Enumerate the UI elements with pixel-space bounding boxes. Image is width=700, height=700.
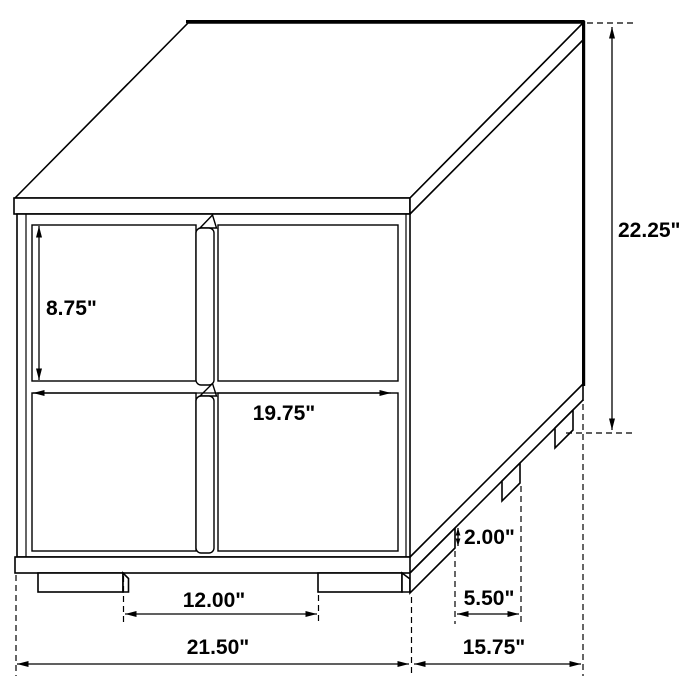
dim-front-leg-spacing: 12.00" <box>124 576 319 624</box>
drawer-front-top-right <box>218 225 398 381</box>
side-corner-leg <box>410 528 455 593</box>
diagram-canvas: 8.75" 22.25" 19.75" 12.00" 21.50" <box>0 0 700 700</box>
drawer-front-bottom-left <box>32 393 196 551</box>
front-left-leg <box>38 573 129 592</box>
cabinet-drawing <box>14 21 585 593</box>
dim-label-leg-height: 2.00" <box>464 526 515 549</box>
dim-label-side-leg-spacing: 5.50" <box>464 587 515 610</box>
front-right-leg <box>318 573 410 592</box>
cabinet-front <box>15 214 410 592</box>
dim-label-overall-depth: 15.75" <box>463 636 526 659</box>
top-front-edge <box>14 198 410 214</box>
dim-label-drawer-width: 19.75" <box>253 402 316 425</box>
dim-leg-height: 2.00" <box>458 526 515 549</box>
drawer-handle-bottom <box>196 384 217 554</box>
dim-label-front-leg-spacing: 12.00" <box>183 589 246 612</box>
dim-label-overall-height: 22.25" <box>618 219 681 242</box>
dim-label-drawer-height: 8.75" <box>46 297 97 320</box>
dim-label-overall-width: 21.50" <box>187 636 250 659</box>
drawer-handle-top <box>196 215 217 385</box>
side-middle-leg <box>502 463 520 501</box>
cabinet-side <box>410 384 583 593</box>
base-plinth <box>15 557 410 573</box>
dim-side-leg-spacing: 5.50" <box>455 486 521 624</box>
furniture-dimension-diagram: 8.75" 22.25" 19.75" 12.00" 21.50" <box>0 0 700 700</box>
side-back-leg <box>555 410 573 448</box>
